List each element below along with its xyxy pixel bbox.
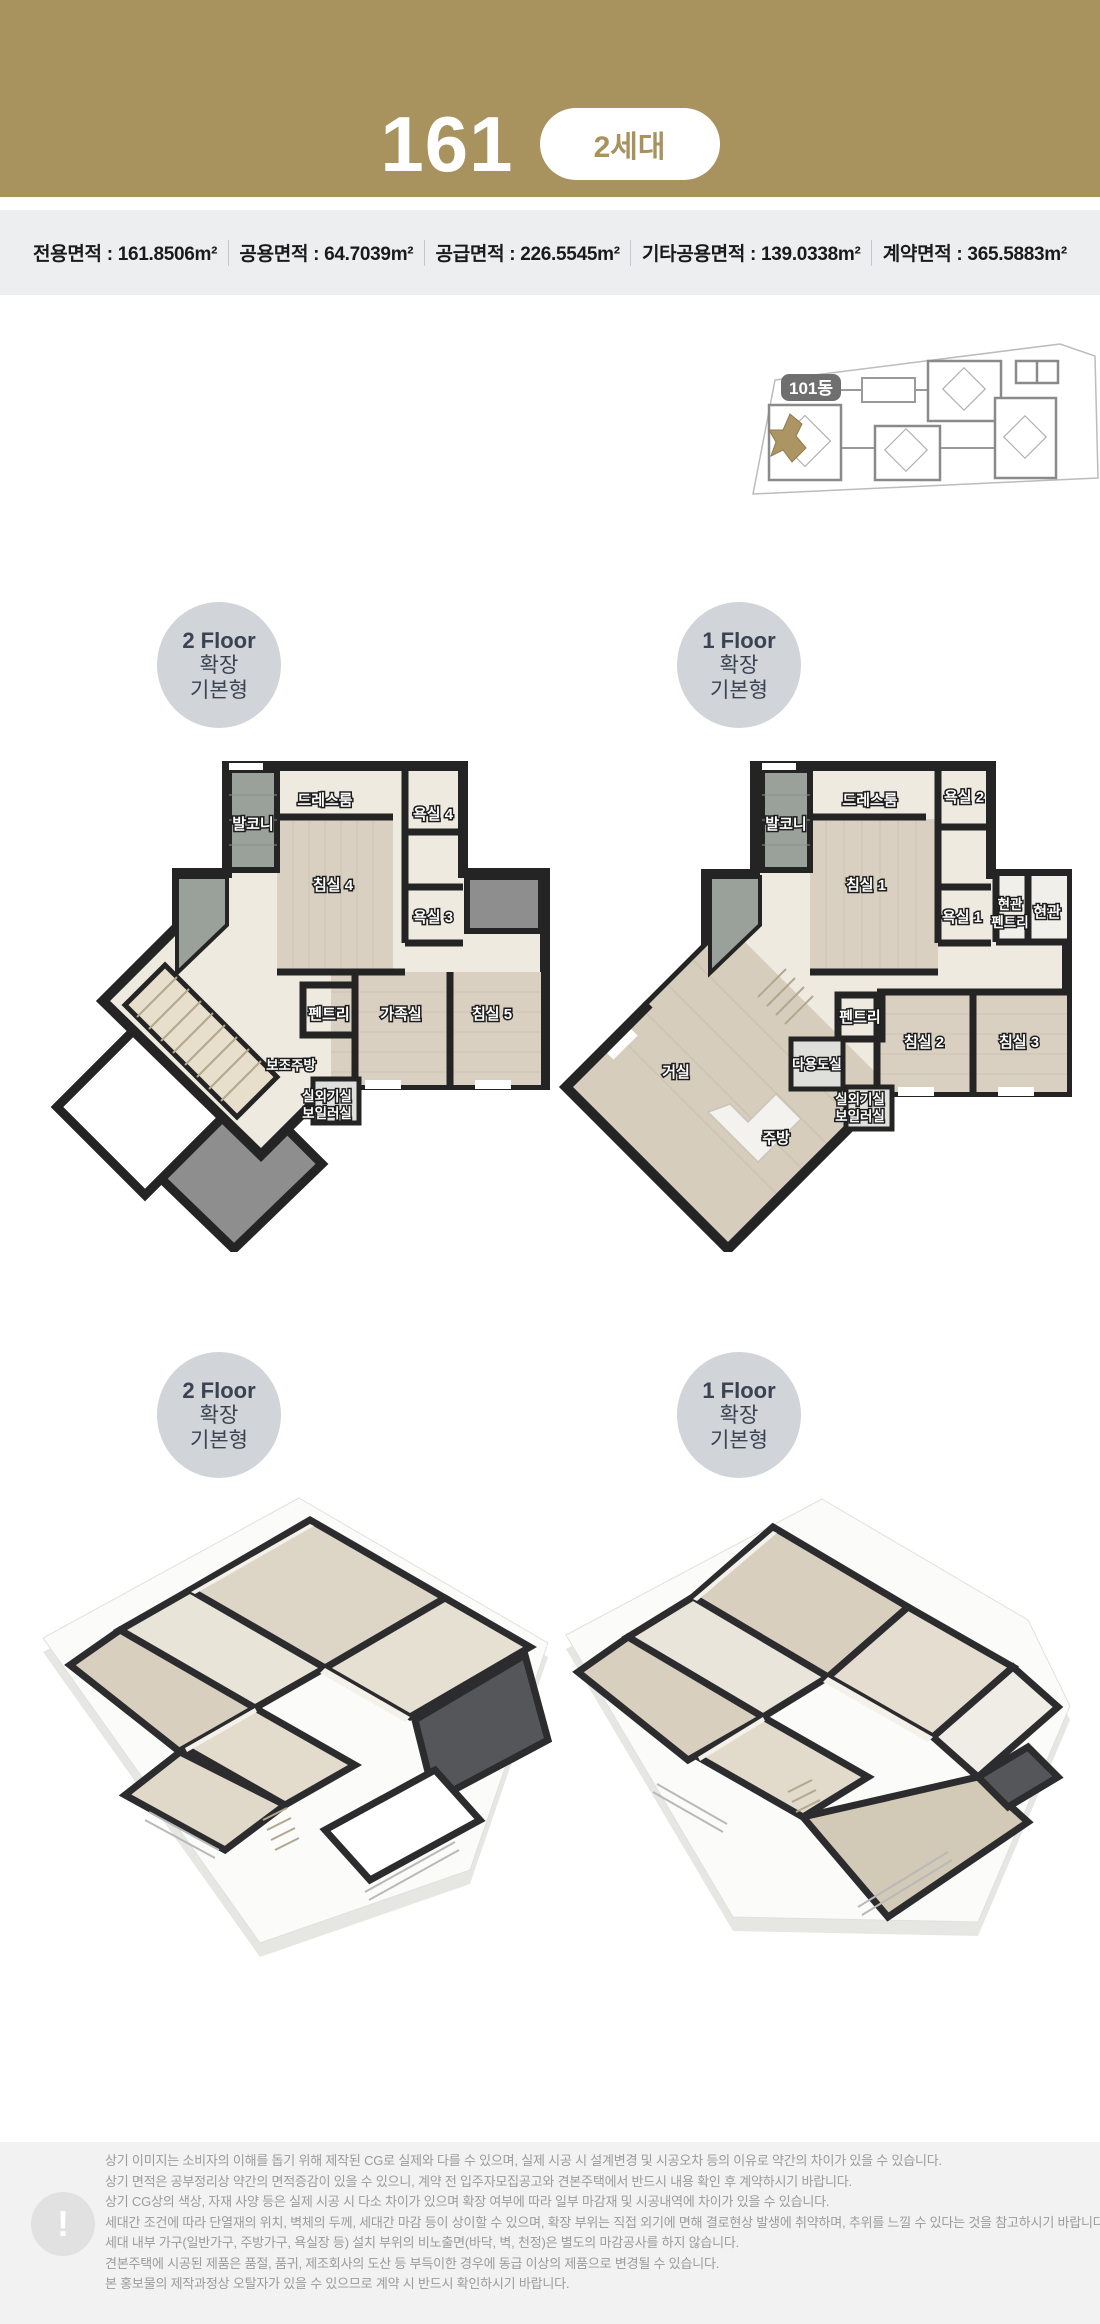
room-label-pantry: 펜트리 — [839, 1009, 880, 1026]
badge-1f-render-line3: 기본형 — [710, 1428, 768, 1453]
disclaimer-line: 본 홍보물의 제작과정상 오탈자가 있을 수 있으므로 계약 시 반드시 확인하… — [105, 2274, 1085, 2295]
area-supply: 공급면적 : 226.5545m² — [436, 239, 620, 266]
room-label-boiler: 보일러실 — [302, 1106, 352, 1121]
unit-number: 161 — [380, 105, 513, 183]
render-3d-2f — [25, 1490, 555, 1960]
divider — [871, 240, 872, 266]
badge-1f-render-line1: 1 Floor — [702, 1378, 775, 1403]
room-label-pantry: 펜트리 — [308, 1006, 349, 1023]
divider — [228, 240, 229, 266]
render-3d-1f — [558, 1492, 1098, 1952]
room-label-entry-pantry-2: 펜트리 — [991, 915, 1028, 930]
badge-1f-line2: 확장 — [720, 653, 759, 678]
household-badge-label: 2세대 — [594, 122, 666, 166]
area-exclusive: 전용면적 : 161.8506m² — [33, 239, 217, 266]
header-band: 161 2세대 — [0, 0, 1100, 197]
room-label-outdoor-unit: 실외기실 — [835, 1091, 885, 1107]
building-103 — [928, 361, 1001, 421]
divider — [630, 240, 631, 266]
room-label-utility: 다용도실 — [792, 1057, 842, 1072]
badge-1f-render-line2: 확장 — [720, 1403, 759, 1428]
site-plan-map: 101동 — [743, 338, 1100, 498]
flyer-page: 161 2세대 전용면적 : 161.8506m² 공용면적 : 64.7039… — [0, 0, 1100, 2324]
room-label-subkitchen: 보조주방 — [266, 1057, 316, 1073]
badge-2f-line1: 2 Floor — [182, 628, 255, 653]
building-101-label: 101동 — [789, 379, 833, 398]
disclaimer-line: 상기 CG상의 색상, 자재 사양 등은 실제 시공 시 다소 차이가 있으며 … — [105, 2192, 1085, 2213]
room-label-balcony: 발코니 — [232, 816, 273, 833]
disclaimer-line: 상기 면적은 공부정리상 약간의 면적증감이 있을 수 있으니, 계약 전 입주… — [105, 2172, 1085, 2193]
badge-1f-line3: 기본형 — [710, 678, 768, 703]
room-label-entry-pantry-1: 현관 — [998, 896, 1023, 912]
room-label-living: 거실 — [662, 1064, 690, 1081]
badge-2f-render: 2 Floor 확장 기본형 — [157, 1352, 281, 1478]
area-contract: 계약면적 : 365.5883m² — [883, 239, 1067, 266]
disclaimer-lines: 상기 이미지는 소비자의 이해를 돕기 위해 제작된 CG로 실제와 다를 수 … — [105, 2151, 1085, 2295]
disclaimer-line: 견본주택에 시공된 제품은 품절, 품귀, 제조회사의 도산 등 부득이한 경우… — [105, 2254, 1085, 2275]
disclaimer-line: 세대 내부 가구(일반가구, 주방가구, 욕실장 등) 설치 부위의 비노출면(… — [105, 2233, 1085, 2254]
room-label-dressroom: 드레스룸 — [297, 792, 352, 809]
disclaimer-line: 상기 이미지는 소비자의 이해를 돕기 위해 제작된 CG로 실제와 다를 수 … — [105, 2151, 1085, 2172]
room-label-family: 가족실 — [380, 1006, 421, 1023]
disclaimer-section: ! 상기 이미지는 소비자의 이해를 돕기 위해 제작된 CG로 실제와 다를 … — [0, 2142, 1100, 2324]
room-label-bed5: 침실 5 — [472, 1006, 512, 1023]
disclaimer-line: 세대간 조건에 따라 단열재의 위치, 벽체의 두께, 세대간 마감 등이 상이… — [105, 2213, 1085, 2234]
family-bed5-floor — [331, 972, 541, 1085]
room-label-bath2: 욕실 2 — [944, 789, 984, 806]
divider — [424, 240, 425, 266]
badge-2f-render-line2: 확장 — [200, 1403, 239, 1428]
bed4-floor — [277, 819, 393, 972]
room-label-boiler: 보일러실 — [835, 1109, 885, 1124]
area-summary-bar: 전용면적 : 161.8506m² 공용면적 : 64.7039m² 공급면적 … — [0, 210, 1100, 295]
badge-2f-line3: 기본형 — [190, 678, 248, 703]
badge-2f-line2: 확장 — [200, 653, 239, 678]
room-label-bed2: 침실 2 — [904, 1034, 944, 1051]
room-label-dressroom: 드레스룸 — [842, 792, 897, 809]
room-label-balcony: 발코니 — [765, 816, 806, 833]
area-other-common: 기타공용면적 : 139.0338m² — [642, 239, 861, 266]
room-label-bath3: 욕실 3 — [413, 909, 453, 926]
badge-2f-render-line1: 2 Floor — [182, 1378, 255, 1403]
badge-1f-render: 1 Floor 확장 기본형 — [677, 1352, 801, 1478]
roof-corner — [467, 877, 541, 931]
room-label-kitchen: 주방 — [762, 1129, 790, 1147]
room-label-entry: 현관 — [1033, 904, 1061, 921]
room-label-bed1: 침실 1 — [846, 877, 886, 894]
room-label-bed4: 침실 4 — [313, 877, 354, 894]
area-common: 공용면적 : 64.7039m² — [239, 239, 413, 266]
badge-1f-line1: 1 Floor — [702, 628, 775, 653]
floor-plan-1f: 발코니 드레스룸 욕실 2 침실 1 욕실 1 현관 펜트리 현관 펜트리 침실… — [558, 757, 1098, 1252]
info-exclamation-icon: ! — [31, 2192, 95, 2256]
bed1-floor — [810, 819, 938, 972]
badge-2f-plan: 2 Floor 확장 기본형 — [157, 602, 281, 728]
room-label-bath4: 욕실 4 — [413, 806, 454, 823]
badge-1f-plan: 1 Floor 확장 기본형 — [677, 602, 801, 728]
badge-2f-render-line3: 기본형 — [190, 1428, 248, 1453]
household-badge: 2세대 — [540, 108, 720, 180]
floor-plan-2f: 드레스룸 발코니 욕실 4 침실 4 욕실 3 펜트리 가족실 침실 5 보조주… — [25, 757, 550, 1252]
title-group: 161 2세대 — [380, 105, 719, 183]
room-label-bath1: 욕실 1 — [942, 909, 982, 926]
building-102 — [875, 426, 940, 480]
room-label-bed3: 침실 3 — [999, 1034, 1039, 1051]
room-label-outdoor-unit: 실외기실 — [302, 1088, 352, 1104]
